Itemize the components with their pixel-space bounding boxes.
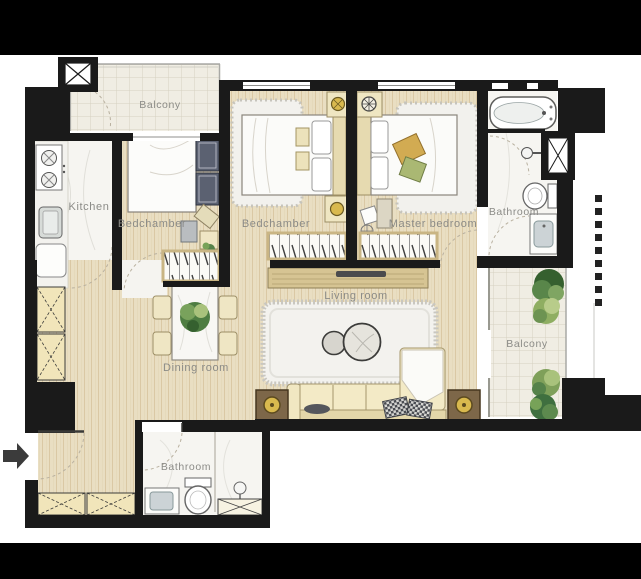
living-room-label: Living room: [324, 290, 387, 302]
wall: [25, 260, 37, 384]
dash: [595, 234, 602, 241]
dash: [595, 286, 602, 293]
wall: [163, 281, 219, 287]
floorplan-drawing: Balcony Kitchen Bedchamber Bedchamber Ma…: [0, 0, 641, 579]
headboard: [333, 115, 346, 195]
balcony-top-label: Balcony: [139, 99, 181, 111]
dash: [595, 247, 602, 254]
decor-wheel-spokes: [362, 97, 376, 111]
plant: [530, 398, 542, 410]
coffee-table-small: [323, 332, 346, 355]
plant: [533, 309, 547, 323]
bed: [128, 134, 196, 212]
cushion: [296, 128, 309, 146]
plant: [542, 404, 558, 420]
sink-basin: [43, 211, 58, 234]
lamp: [331, 203, 344, 216]
bathtub-tap: [550, 106, 553, 109]
pillow: [312, 121, 331, 154]
dining-chair: [219, 296, 237, 319]
pillow: [371, 157, 388, 189]
entry-arrow-icon: [3, 443, 29, 469]
closet: [163, 251, 219, 281]
centerpiece-plant: [194, 304, 208, 318]
tv: [336, 271, 386, 277]
master-bedroom-label: Master bedroom: [389, 218, 478, 230]
letterbox-top: [0, 0, 641, 55]
wall: [255, 419, 570, 431]
dash: [595, 208, 602, 215]
dark-pillow: [304, 404, 330, 414]
dining-chair: [153, 332, 171, 355]
faucet-icon: [234, 482, 246, 494]
boundary-dashes: [595, 195, 602, 306]
sofa-armrest: [287, 384, 301, 422]
vestibule-floor: [122, 260, 167, 298]
wall: [25, 87, 70, 133]
bathtub-basin: [494, 103, 544, 124]
bedchamber-left-label: Bedchamber: [118, 218, 186, 230]
dining-room-label: Dining room: [163, 362, 229, 374]
bathtub-tap: [550, 118, 553, 121]
window: [527, 83, 538, 89]
plant: [544, 370, 560, 386]
centerpiece-plant: [180, 304, 196, 320]
dash: [595, 273, 602, 280]
cushion: [296, 152, 309, 170]
wall: [219, 80, 230, 287]
wall: [135, 420, 143, 518]
floorplan-image: Balcony Kitchen Bedchamber Bedchamber Ma…: [0, 0, 641, 579]
kitchen-appliance: [36, 244, 66, 277]
wall: [346, 91, 357, 265]
dash: [595, 260, 602, 267]
wall: [558, 88, 605, 133]
wall: [270, 260, 440, 268]
vanity-tap: [543, 225, 546, 228]
lamp-detail: [270, 403, 274, 407]
bathroom-bottom-label: Bathroom: [161, 461, 211, 473]
dining-chair: [219, 332, 237, 355]
wall: [25, 515, 270, 528]
centerpiece-plant: [187, 320, 199, 332]
bathroom-door-gap: [142, 422, 182, 432]
wall: [262, 432, 270, 518]
pillow: [312, 158, 331, 191]
bathtub-drain: [542, 111, 546, 115]
kitchen-label: Kitchen: [69, 201, 110, 213]
lamp-detail: [462, 403, 466, 407]
pillow: [371, 121, 388, 153]
plant: [532, 382, 546, 396]
headboard: [357, 115, 371, 195]
wall: [562, 378, 641, 431]
plant: [544, 298, 560, 314]
dash: [595, 195, 602, 202]
dash: [595, 221, 602, 228]
plant: [203, 243, 210, 250]
wall: [122, 133, 133, 141]
dining-chair: [153, 296, 171, 319]
closet: [360, 233, 437, 259]
letterbox-bottom: [0, 543, 641, 579]
window: [492, 83, 508, 89]
faucet-icon: [522, 148, 533, 159]
stove-knob: [63, 171, 65, 173]
balcony-right-label: Balcony: [506, 338, 548, 350]
wall: [483, 256, 573, 268]
checkered-pillow: [407, 399, 432, 419]
wardrobe: [196, 173, 219, 205]
bathroom-top-label: Bathroom: [489, 206, 539, 218]
wall: [112, 141, 122, 290]
wall: [25, 480, 38, 518]
wardrobe: [196, 140, 219, 171]
wall: [477, 88, 488, 207]
kitchen-fixtures: [33, 141, 68, 288]
dash: [595, 299, 602, 306]
toilet-tank: [548, 184, 557, 208]
wall: [488, 129, 545, 133]
vanity-sink: [150, 492, 173, 510]
stove-knob: [63, 165, 65, 167]
closet: [268, 233, 346, 259]
toilet: [185, 486, 211, 514]
wall: [25, 382, 75, 433]
balcony-door-gap: [485, 330, 491, 378]
wall: [25, 133, 122, 141]
wall: [25, 133, 35, 262]
bedchamber-center-label: Bedchamber: [242, 218, 310, 230]
